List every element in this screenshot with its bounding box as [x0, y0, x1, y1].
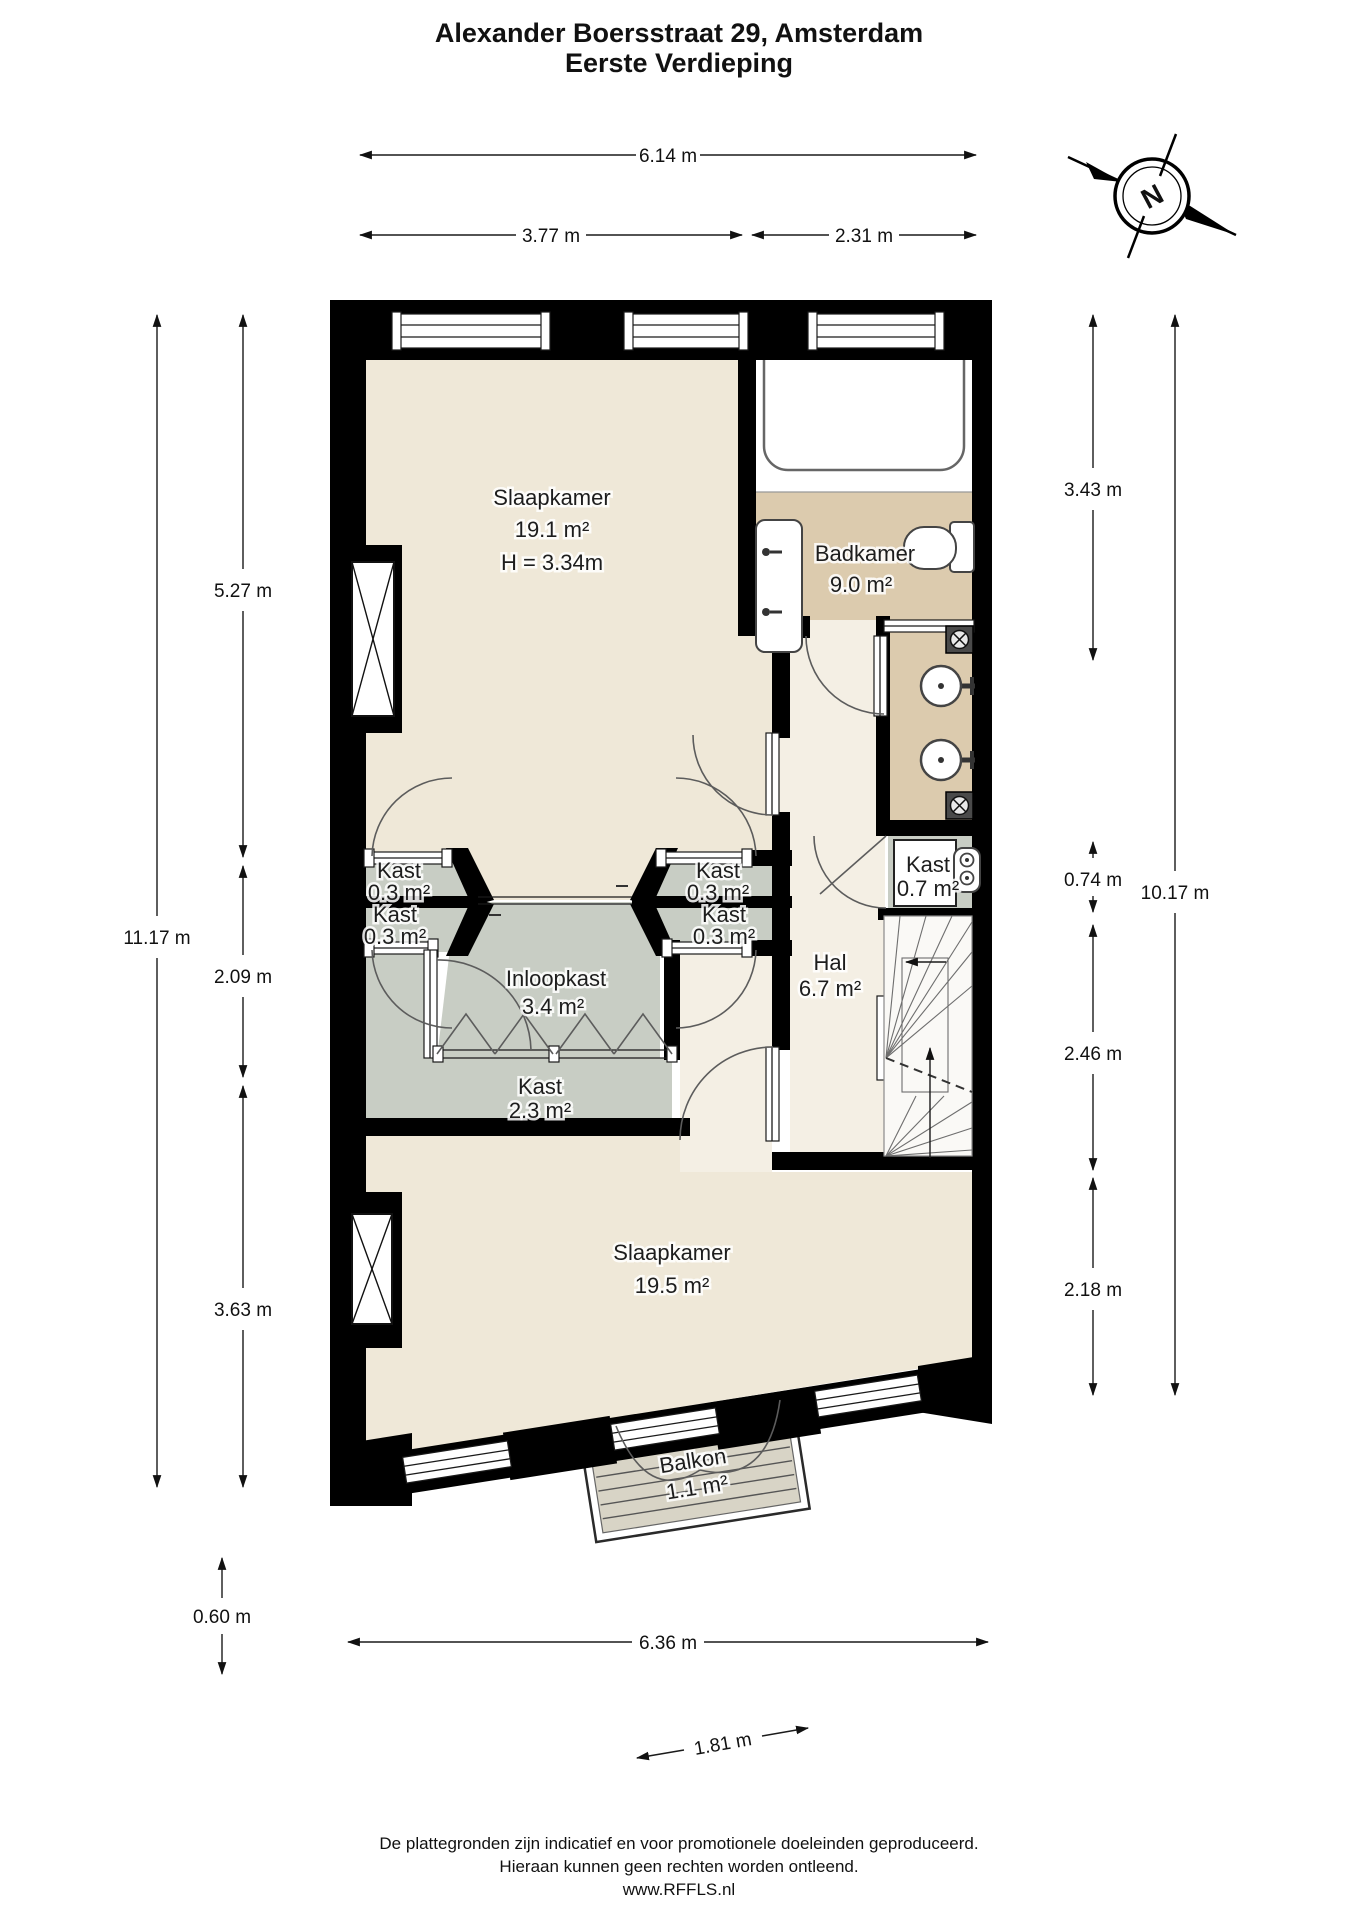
floor-bedroom-1	[365, 316, 772, 900]
room-area-badkamer: 9.0 m²	[830, 572, 892, 597]
room-label-inloopkast: Inloopkast	[506, 966, 606, 991]
vanity-sink-icon	[756, 520, 802, 652]
stairs	[884, 916, 972, 1158]
dim-top-left: 3.77 m	[522, 226, 580, 247]
room-label-slaapkamer-1: Slaapkamer	[493, 485, 610, 510]
chimney-flue-icon-2	[352, 1214, 392, 1324]
floor-hall-opening-bath	[806, 620, 878, 636]
floor-hall-strip	[680, 940, 772, 1172]
room-label-hal: Hal	[813, 950, 846, 975]
floorplan-drawing: Balkon 1.1 m²	[0, 0, 1358, 1920]
dim-left-1: 5.27 m	[214, 581, 272, 602]
dim-balcony-width: 1.81 m	[692, 1729, 753, 1760]
dim-right-3: 2.46 m	[1064, 1044, 1122, 1065]
room-area-kast-07: 0.7 m²	[897, 876, 959, 901]
footer-website: www.RFFLS.nl	[622, 1880, 735, 1899]
room-note-slaapkamer-1: H = 3.34m	[501, 550, 603, 575]
footer-disclaimer-line1: De plattegronden zijn indicatief en voor…	[379, 1834, 978, 1853]
door-leaf-walkin	[424, 950, 437, 1058]
dim-right-4: 2.18 m	[1064, 1280, 1122, 1301]
room-label-kast-07: Kast	[906, 852, 950, 877]
door-leaf-bed2	[766, 1047, 779, 1141]
room-area-kast-ll: 0.3 m²	[364, 924, 426, 949]
dim-top-right: 2.31 m	[835, 226, 893, 247]
page-title-line2: Eerste Verdieping	[565, 48, 793, 78]
door-leaf-bath	[874, 636, 887, 716]
dim-bottom-total: 6.36 m	[639, 1633, 697, 1654]
window-top-2	[624, 312, 748, 350]
room-label-slaapkamer-2: Slaapkamer	[613, 1240, 730, 1265]
room-label-kast-23: Kast	[518, 1074, 562, 1099]
dim-right-1: 3.43 m	[1064, 480, 1122, 501]
dim-left-2: 2.09 m	[214, 967, 272, 988]
room-area-kast-lr: 0.3 m²	[693, 924, 755, 949]
dim-top-total: 6.14 m	[639, 146, 697, 167]
dim-right-2: 0.74 m	[1064, 870, 1122, 891]
room-label-badkamer: Badkamer	[815, 541, 915, 566]
room-area-slaapkamer-1: 19.1 m²	[515, 517, 590, 542]
floorplan-page: Balkon 1.1 m²	[0, 0, 1358, 1920]
dim-left-total: 11.17 m	[123, 928, 190, 949]
footer-disclaimer-line2: Hieraan kunnen geen rechten worden ontle…	[499, 1857, 858, 1876]
room-area-slaapkamer-2: 19.5 m²	[635, 1273, 710, 1298]
dim-left-3: 3.63 m	[214, 1300, 272, 1321]
window-top-3	[808, 312, 944, 350]
shower-drain-icon-1	[946, 626, 973, 653]
page-title-line1: Alexander Boersstraat 29, Amsterdam	[435, 18, 923, 48]
chimney-flue-icon-1	[352, 562, 394, 716]
shower-drain-icon-2	[946, 792, 973, 819]
door-leaf-bed1	[766, 733, 779, 815]
dim-left-4: 0.60 m	[193, 1607, 251, 1628]
floor-hall	[790, 632, 885, 1162]
room-area-inloopkast: 3.4 m²	[522, 994, 584, 1019]
room-area-hal: 6.7 m²	[799, 976, 861, 1001]
room-area-kast-23: 2.3 m²	[509, 1098, 571, 1123]
dim-right-total: 10.17 m	[1141, 883, 1210, 904]
window-top-1	[392, 312, 550, 350]
compass-icon: N	[1068, 134, 1236, 258]
